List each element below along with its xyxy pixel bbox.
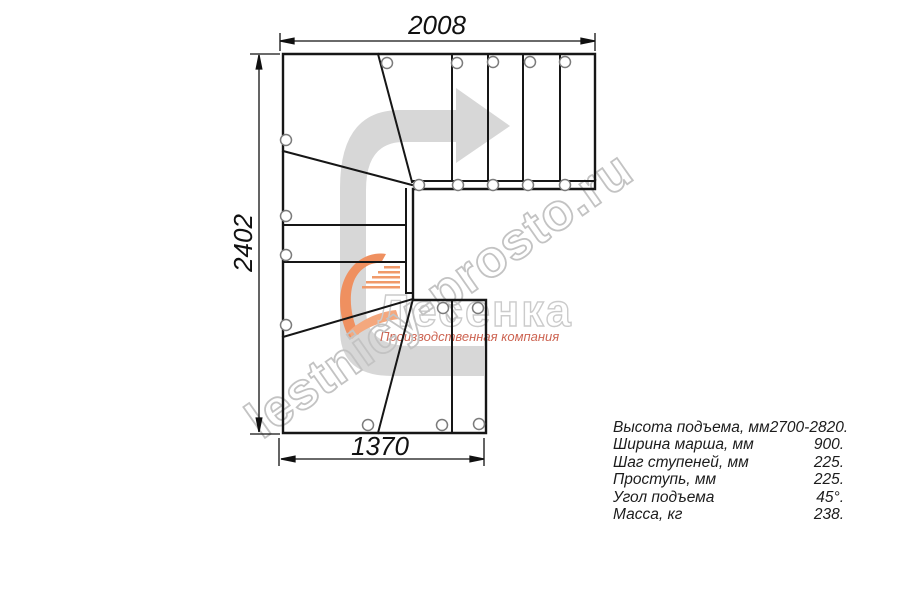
fastener-marker (560, 57, 571, 68)
spec-value: 900. (814, 436, 844, 453)
spec-label: Шаг ступеней, мм (613, 454, 749, 471)
fastener-marker (281, 211, 292, 222)
fastener-marker (560, 180, 571, 191)
dim-arrow-icon (581, 38, 595, 44)
spec-label: Угол подъема (613, 489, 714, 506)
spec-row: Проступь, мм 225. (613, 471, 844, 488)
fastener-marker (363, 420, 374, 431)
fastener-marker (438, 303, 449, 314)
fastener-marker (437, 420, 448, 431)
fastener-marker (281, 320, 292, 331)
spec-row: Шаг ступеней, мм 225. (613, 454, 844, 471)
fastener-marker (452, 58, 463, 69)
staircase-drawing-page: Лесенка Производственная компания lestni… (0, 0, 900, 600)
fastener-marker (523, 180, 534, 191)
spec-label: Ширина марша, мм (613, 436, 754, 453)
fastener-marker (281, 135, 292, 146)
dim-arrow-icon (470, 456, 484, 462)
spec-value: 45°. (816, 489, 844, 506)
fastener-marker (488, 57, 499, 68)
dimension-top-width: 2008 (280, 10, 595, 51)
dim-arrow-icon (280, 38, 294, 44)
spec-value: 238. (814, 506, 844, 523)
spec-row: Угол подъема 45°. (613, 489, 844, 506)
fastener-marker (474, 419, 485, 430)
dim-label-left: 2402 (228, 214, 258, 273)
spec-label: Проступь, мм (613, 471, 716, 488)
fastener-marker (414, 180, 425, 191)
watermark-layer: Лесенка Производственная компания lestni… (236, 88, 644, 450)
spec-row: Высота подъема, мм 2700-2820. (613, 419, 844, 436)
fastener-marker (281, 250, 292, 261)
spec-value: 225. (814, 454, 844, 471)
dim-arrow-icon (281, 456, 295, 462)
spec-value: 2700-2820. (770, 419, 848, 436)
spec-value: 225. (814, 471, 844, 488)
spec-label: Высота подъема, мм (613, 419, 770, 436)
dimension-bottom-width: 1370 (279, 431, 484, 466)
dim-label-top: 2008 (407, 10, 466, 40)
fastener-marker (453, 180, 464, 191)
dim-arrow-icon (256, 55, 262, 69)
dim-label-bottom: 1370 (351, 431, 409, 461)
fastener-marker (473, 303, 484, 314)
fastener-marker (382, 58, 393, 69)
fastener-marker (488, 180, 499, 191)
spec-row: Масса, кг 238. (613, 506, 844, 523)
site-watermark-text: lestnicy-prosto.ru (236, 140, 644, 450)
spec-table: Высота подъема, мм 2700-2820. Ширина мар… (613, 419, 844, 523)
spec-row: Ширина марша, мм 900. (613, 436, 844, 453)
spec-label: Масса, кг (613, 506, 682, 523)
fastener-marker (525, 57, 536, 68)
